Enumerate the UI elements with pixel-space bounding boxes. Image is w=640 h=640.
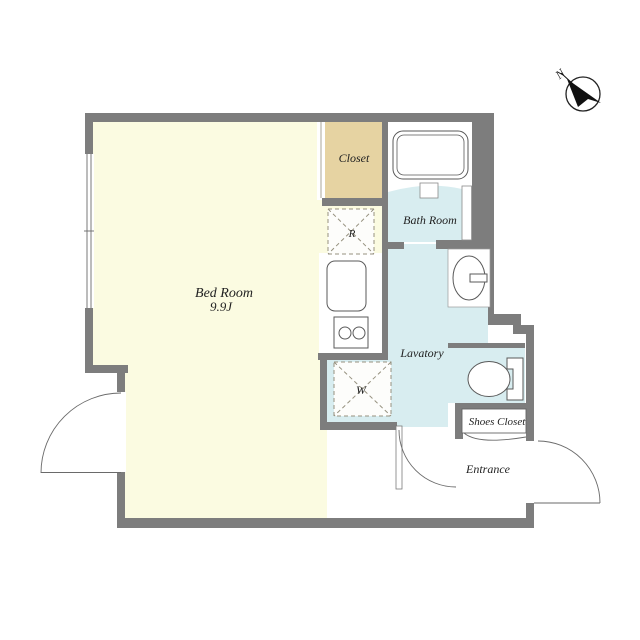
wall-segment [322, 198, 385, 206]
entrance-label: Entrance [465, 462, 511, 476]
stove-burner [353, 327, 365, 339]
bedroom-size-label: 9.9J [210, 299, 233, 314]
closet-label: Closet [339, 151, 370, 165]
floors [93, 120, 525, 518]
compass-north-label: N [552, 65, 569, 82]
wall-segment [117, 518, 534, 528]
washer-mark: W [356, 383, 367, 397]
floor-plan-page: N Bed Room 9.9J Closet Bath Room Lavator… [0, 0, 640, 640]
refrigerator-mark: R [348, 228, 356, 240]
wall-segment [472, 113, 494, 249]
toilet-bowl [468, 362, 510, 397]
wall-segment [320, 353, 327, 430]
wall-segment [318, 353, 388, 360]
entrance-door-opening [524, 441, 536, 503]
wall-segment [85, 365, 128, 373]
bathroom-label: Bath Room [403, 213, 457, 227]
wall-segment [382, 122, 388, 360]
wall-segment [513, 325, 534, 334]
shoes-closet-label: Shoes Closet [469, 416, 526, 428]
bathtub-counter-notch [420, 183, 438, 198]
side-door-swing-arc [41, 393, 121, 473]
lavatory-label: Lavatory [399, 346, 444, 360]
side-door-opening [116, 392, 126, 472]
floor-plan-drawing: N Bed Room 9.9J Closet Bath Room Lavator… [0, 0, 640, 640]
bathtub [393, 131, 468, 179]
wall-segment [320, 422, 397, 430]
bedroom-floor-lower [125, 365, 327, 518]
wall-segment [85, 113, 494, 122]
compass: N [552, 65, 601, 111]
basin-faucet [470, 274, 487, 282]
entrance-door-swing-arc [538, 441, 600, 503]
wall-segment [436, 240, 472, 249]
stove-burner [339, 327, 351, 339]
bedroom-floor [93, 122, 327, 365]
kitchen-sink [327, 261, 366, 311]
bathroom-door-panel [462, 186, 472, 240]
wall-segment [388, 242, 404, 249]
wall-segment [448, 343, 525, 348]
